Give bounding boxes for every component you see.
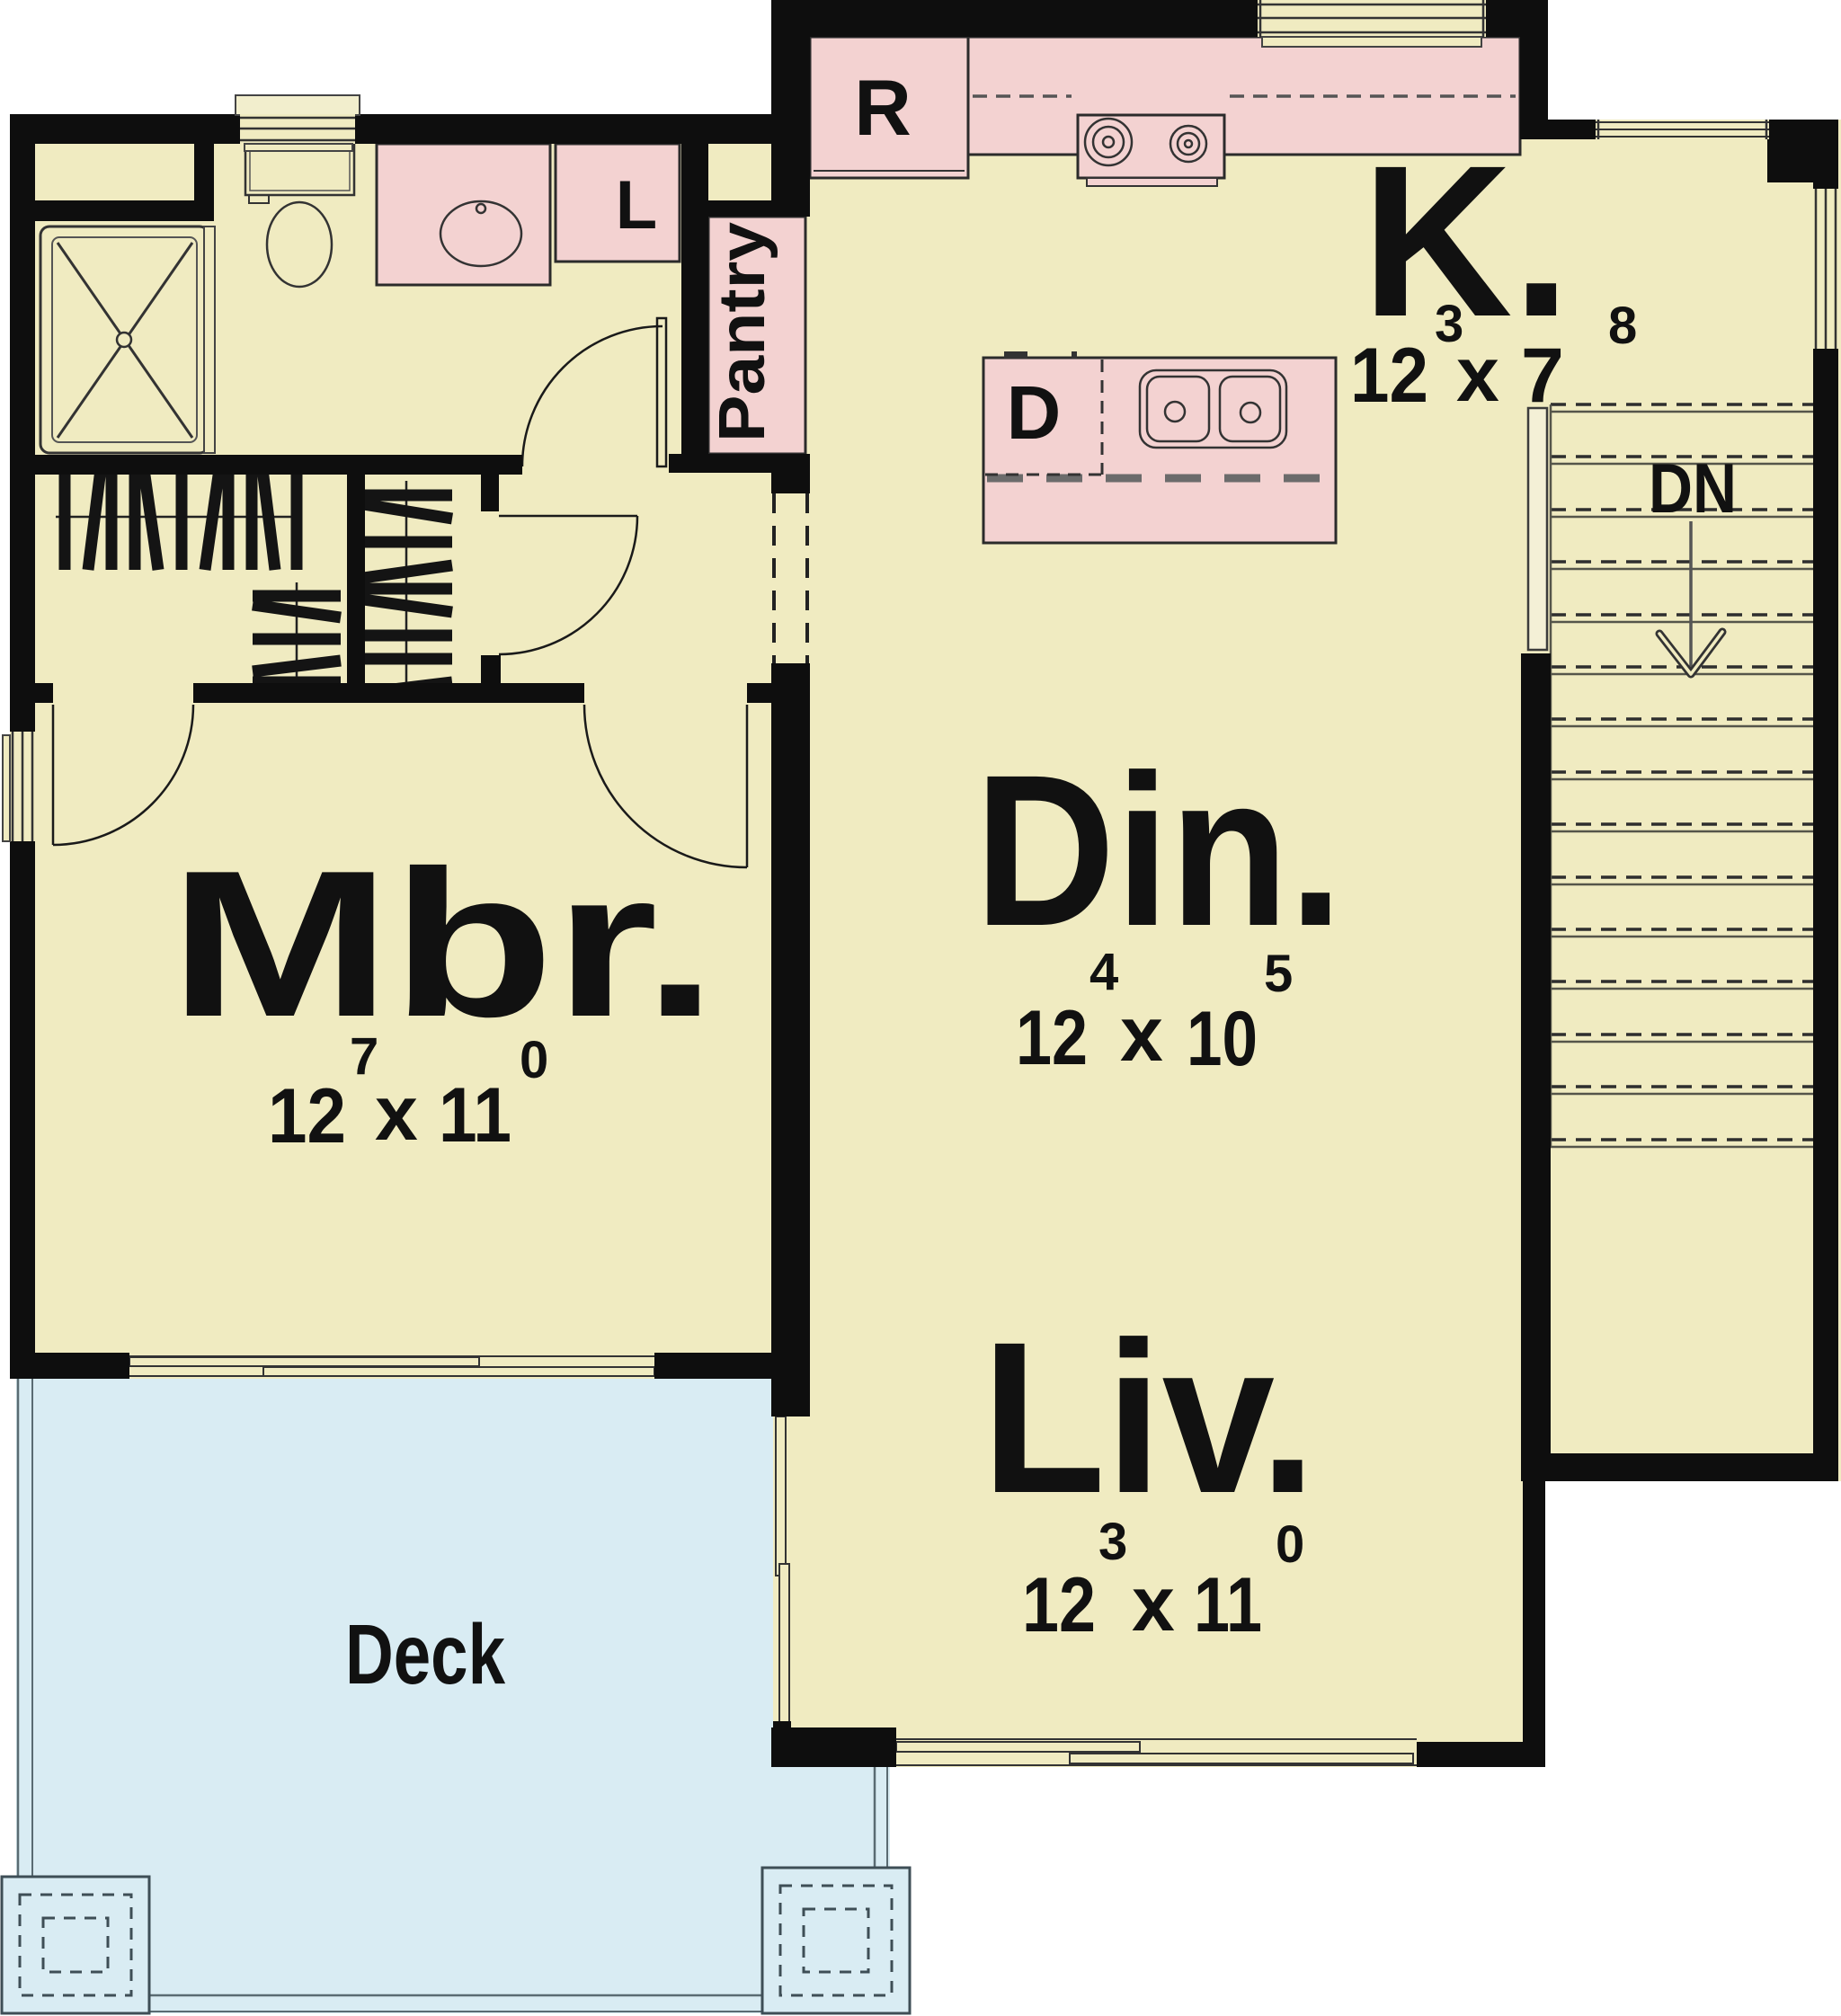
svg-text:x: x xyxy=(1132,1561,1175,1647)
svg-text:Deck: Deck xyxy=(345,1607,505,1702)
svg-text:Din.: Din. xyxy=(974,730,1343,971)
svg-text:0: 0 xyxy=(1276,1515,1304,1574)
svg-text:4: 4 xyxy=(1089,943,1118,1001)
svg-text:11: 11 xyxy=(1194,1562,1262,1648)
svg-text:7: 7 xyxy=(1521,333,1564,419)
svg-text:K.: K. xyxy=(1362,120,1570,361)
svg-text:R: R xyxy=(854,63,912,152)
svg-text:Mbr.: Mbr. xyxy=(169,828,717,1061)
svg-text:x: x xyxy=(1120,991,1163,1078)
svg-text:5: 5 xyxy=(1264,945,1293,1003)
svg-text:Liv.: Liv. xyxy=(982,1297,1316,1538)
svg-text:12: 12 xyxy=(1016,995,1088,1081)
svg-text:x: x xyxy=(1456,332,1499,418)
svg-text:Pantry: Pantry xyxy=(707,222,778,442)
svg-text:L: L xyxy=(616,167,657,244)
svg-text:12: 12 xyxy=(268,1073,346,1159)
svg-text:3: 3 xyxy=(1098,1513,1127,1571)
svg-text:8: 8 xyxy=(1608,297,1637,355)
svg-text:x: x xyxy=(375,1070,418,1157)
svg-text:DN: DN xyxy=(1649,448,1737,528)
svg-text:11: 11 xyxy=(439,1072,511,1159)
svg-text:D: D xyxy=(1007,370,1062,455)
svg-text:12: 12 xyxy=(1350,333,1428,419)
svg-text:10: 10 xyxy=(1187,996,1258,1082)
svg-text:12: 12 xyxy=(1022,1562,1096,1648)
svg-text:0: 0 xyxy=(520,1031,548,1089)
